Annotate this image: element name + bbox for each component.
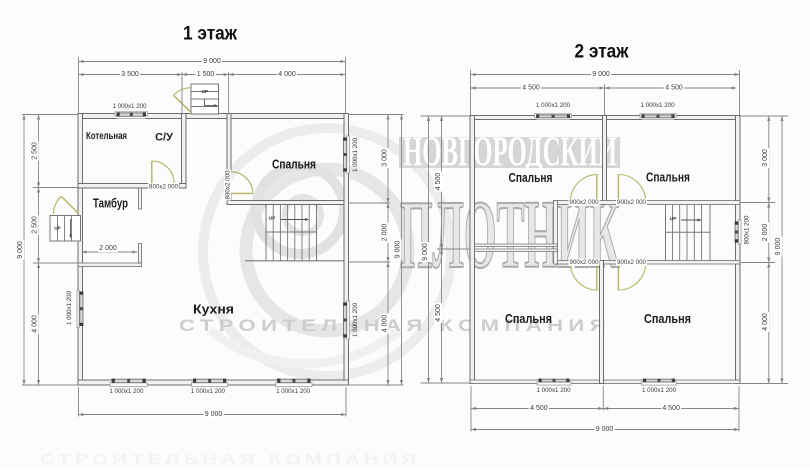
svg-text:НОВГОРОДСКИЙ: НОВГОРОДСКИЙ <box>403 130 617 176</box>
svg-text:СТРОИТЕЛЬНАЯ КОМПАНИЯ: СТРОИТЕЛЬНАЯ КОМПАНИЯ <box>40 451 420 467</box>
svg-text:900x2 000: 900x2 000 <box>617 199 646 206</box>
svg-text:4 500: 4 500 <box>662 405 680 412</box>
svg-text:Кухня: Кухня <box>193 303 234 317</box>
svg-text:800x2 000: 800x2 000 <box>224 170 231 199</box>
svg-text:9 000: 9 000 <box>203 58 221 65</box>
svg-text:2 500: 2 500 <box>32 216 39 234</box>
svg-text:4 500: 4 500 <box>435 304 442 322</box>
svg-text:Спальня: Спальня <box>646 170 690 185</box>
svg-text:1 000x1 200: 1 000x1 200 <box>640 102 675 109</box>
svg-text:9 000: 9 000 <box>775 238 782 256</box>
svg-text:800x1 200: 800x1 200 <box>744 215 751 244</box>
svg-text:ПЛОТНИК: ПЛОТНИК <box>400 181 620 289</box>
svg-text:UP: UP <box>54 226 61 231</box>
svg-text:Спальня: Спальня <box>505 311 552 326</box>
svg-text:Спальня: Спальня <box>272 157 316 172</box>
svg-text:UP: UP <box>269 216 277 222</box>
svg-text:1 000x1 200: 1 000x1 200 <box>276 388 311 395</box>
svg-text:2 000: 2 000 <box>99 245 117 252</box>
svg-text:9 000: 9 000 <box>395 241 402 259</box>
svg-text:4 000: 4 000 <box>32 315 39 333</box>
svg-text:UP: UP <box>202 89 209 94</box>
svg-text:1 000x1 200: 1 000x1 200 <box>109 388 144 395</box>
svg-text:1 000x1 200: 1 000x1 200 <box>352 302 359 337</box>
svg-text:3 500: 3 500 <box>121 71 139 78</box>
svg-text:9 000: 9 000 <box>596 426 614 433</box>
svg-text:3 000: 3 000 <box>762 149 769 167</box>
svg-text:1 000x1 200: 1 000x1 200 <box>536 102 571 109</box>
svg-text:UP: UP <box>670 216 678 222</box>
svg-text:9 000: 9 000 <box>592 71 610 78</box>
svg-text:4 500: 4 500 <box>530 405 548 412</box>
svg-text:1 этаж: 1 этаж <box>183 24 237 45</box>
svg-text:1 000x1 200: 1 000x1 200 <box>112 103 147 110</box>
svg-text:9 000: 9 000 <box>205 411 223 418</box>
svg-text:800x2 000: 800x2 000 <box>149 183 178 190</box>
svg-text:4 000: 4 000 <box>762 313 769 331</box>
svg-text:1 000x1 200: 1 000x1 200 <box>536 387 571 394</box>
svg-text:4 500: 4 500 <box>522 85 540 92</box>
svg-text:Спальня: Спальня <box>644 311 691 326</box>
svg-text:4 500: 4 500 <box>665 85 683 92</box>
svg-text:9 000: 9 000 <box>422 243 429 261</box>
svg-text:1 000x1 200: 1 000x1 200 <box>642 387 677 394</box>
svg-text:900x2 000: 900x2 000 <box>570 199 599 206</box>
svg-text:4 500: 4 500 <box>435 173 442 191</box>
svg-text:4 000: 4 000 <box>278 71 296 78</box>
svg-text:4 000: 4 000 <box>382 315 389 333</box>
svg-text:1 000x1 200: 1 000x1 200 <box>66 290 73 325</box>
svg-text:900x2 000: 900x2 000 <box>570 259 599 266</box>
svg-text:Спальня: Спальня <box>509 170 553 185</box>
svg-text:Котельная: Котельная <box>86 131 127 142</box>
svg-text:2 500: 2 500 <box>32 142 39 160</box>
svg-text:2 этаж: 2 этаж <box>575 42 629 63</box>
svg-text:900x2 000: 900x2 000 <box>617 259 646 266</box>
svg-text:1 500: 1 500 <box>197 71 215 78</box>
svg-text:С/У: С/У <box>155 132 173 144</box>
svg-text:2 000: 2 000 <box>762 224 769 242</box>
svg-text:1 000x1 200: 1 000x1 200 <box>352 137 359 172</box>
svg-text:Тамбур: Тамбур <box>93 197 128 211</box>
svg-text:3 000: 3 000 <box>382 149 389 167</box>
svg-text:1 000x1 200: 1 000x1 200 <box>191 388 226 395</box>
svg-text:9 000: 9 000 <box>17 241 24 259</box>
svg-text:2 000: 2 000 <box>382 224 389 242</box>
